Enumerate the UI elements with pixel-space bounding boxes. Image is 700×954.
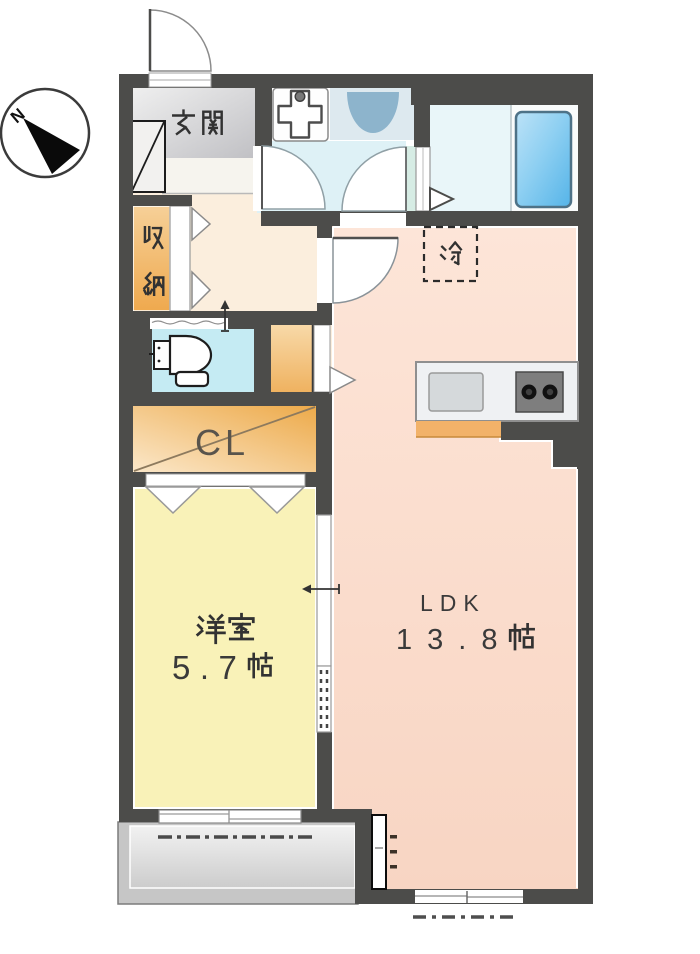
svg-text:5.7: 5.7 — [172, 649, 246, 686]
svg-text:13.8: 13.8 — [396, 624, 512, 656]
svg-text:CL: CL — [195, 422, 249, 463]
svg-text:LDK: LDK — [420, 590, 486, 616]
